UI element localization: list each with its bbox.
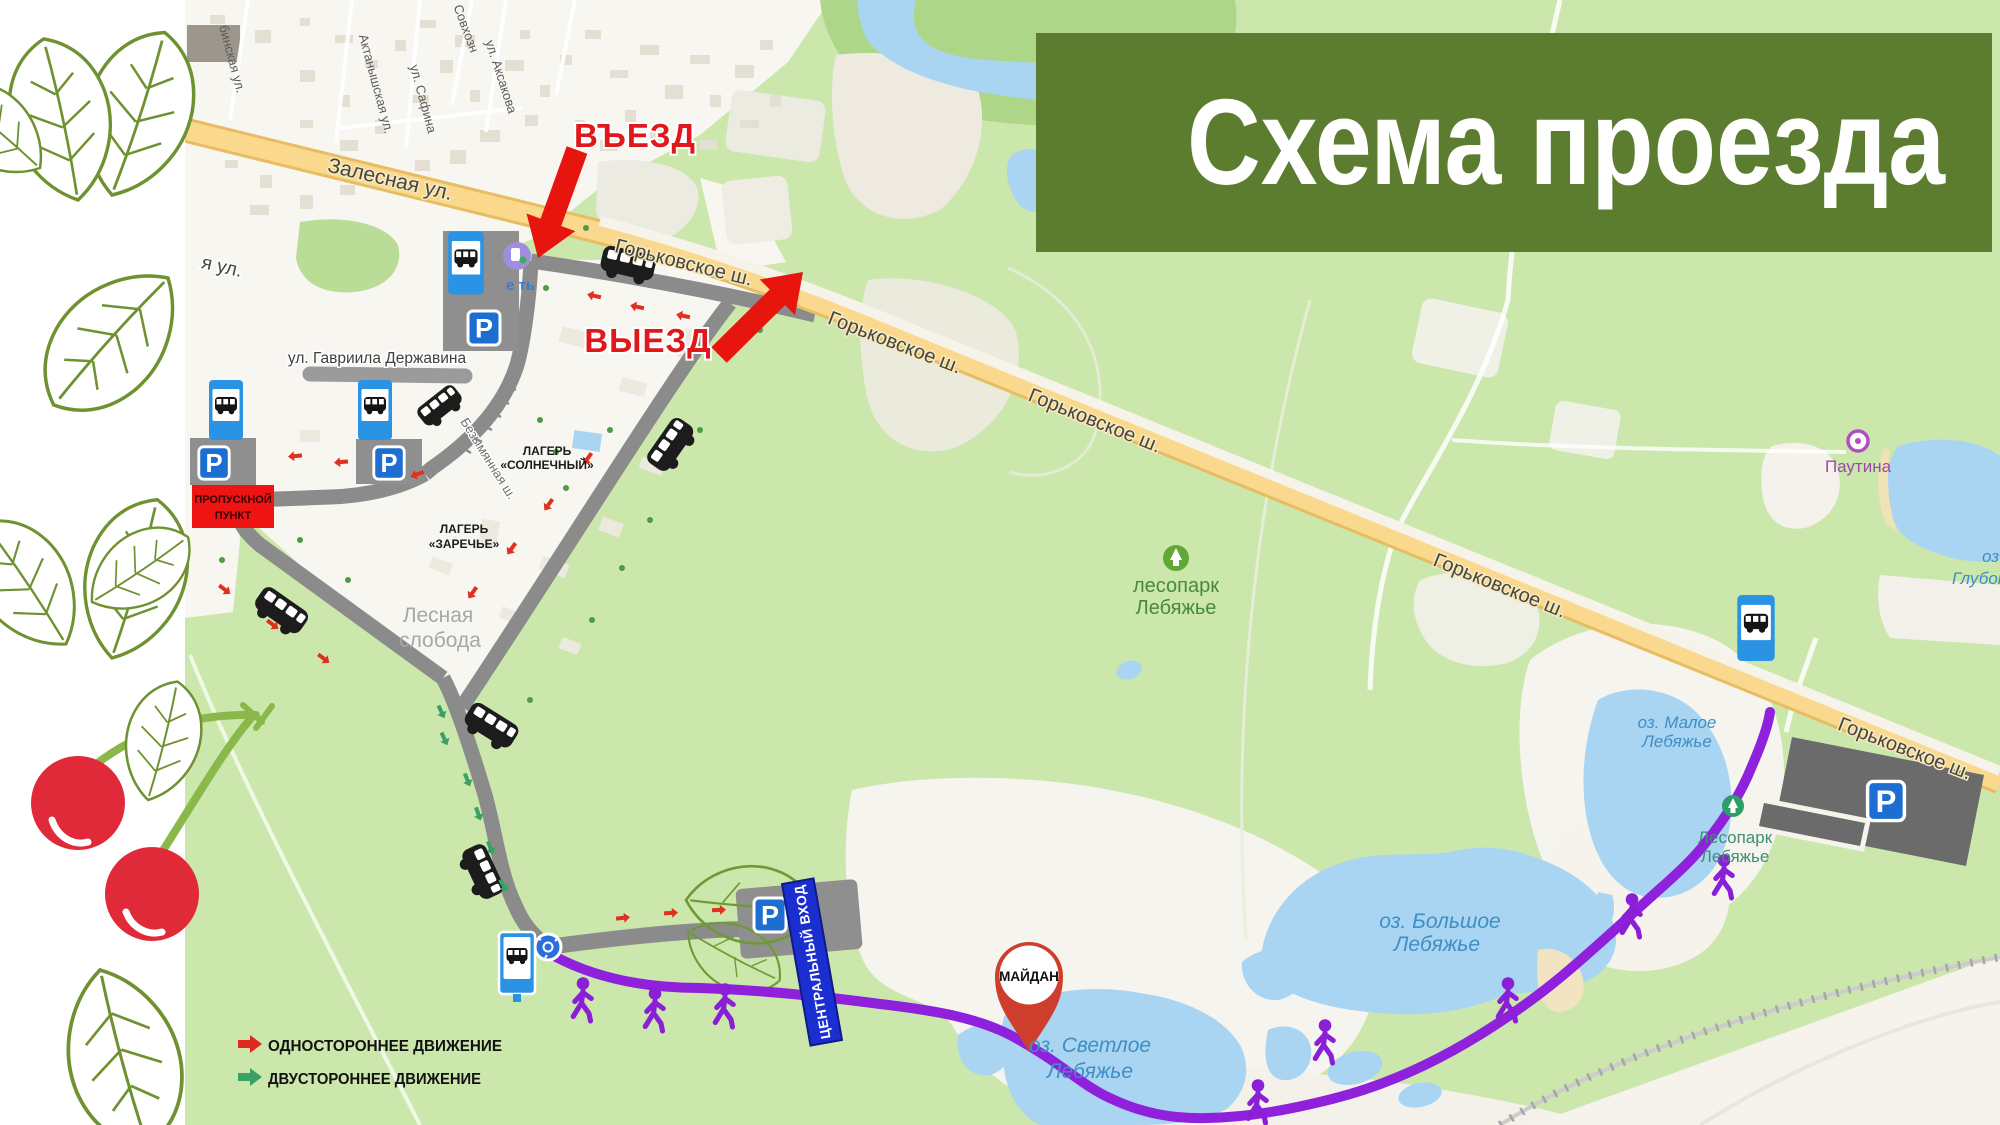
svg-text:Лебяжье: Лебяжье xyxy=(1392,933,1480,956)
svg-text:ВЪЕЗД: ВЪЕЗД xyxy=(574,117,696,154)
svg-text:ЛАГЕРЬ: ЛАГЕРЬ xyxy=(440,522,489,536)
svg-text:ДВУСТОРОННЕЕ ДВИЖЕНИЕ: ДВУСТОРОННЕЕ ДВИЖЕНИЕ xyxy=(268,1071,481,1088)
svg-text:Глубок: Глубок xyxy=(1952,569,2000,588)
svg-text:Паутина: Паутина xyxy=(1825,457,1892,476)
svg-text:Лесная: Лесная xyxy=(403,604,474,627)
svg-text:«СОЛНЕЧНЫЙ»: «СОЛНЕЧНЫЙ» xyxy=(500,457,594,472)
svg-text:Схема проезда: Схема проезда xyxy=(1187,74,1946,210)
svg-text:лесопарк: лесопарк xyxy=(1133,575,1219,597)
svg-text:е ть: е ть xyxy=(506,277,535,294)
svg-text:МАЙДАН: МАЙДАН xyxy=(999,969,1059,984)
svg-text:оз. Малое: оз. Малое xyxy=(1638,713,1717,732)
svg-text:ВЫЕЗД: ВЫЕЗД xyxy=(584,322,711,359)
svg-text:Лебяжье: Лебяжье xyxy=(1045,1060,1133,1083)
svg-text:Лебяжье: Лебяжье xyxy=(1641,732,1712,751)
svg-text:Лесопарк: Лесопарк xyxy=(1698,828,1773,847)
svg-text:слобода: слобода xyxy=(399,629,481,652)
svg-text:оз. Большое: оз. Большое xyxy=(1379,910,1500,933)
svg-text:Лебяжье: Лебяжье xyxy=(1136,597,1217,619)
svg-text:ул. Гавриила Державина: ул. Гавриила Державина xyxy=(288,350,467,367)
svg-text:ПУНКТ: ПУНКТ xyxy=(215,510,252,522)
svg-text:ЛАГЕРЬ: ЛАГЕРЬ xyxy=(523,444,572,458)
svg-text:Лебяжье: Лебяжье xyxy=(1701,847,1770,866)
svg-text:оз.: оз. xyxy=(1982,547,2000,566)
svg-text:ПРОПУСКНОЙ: ПРОПУСКНОЙ xyxy=(194,493,272,506)
svg-text:«ЗАРЕЧЬЕ»: «ЗАРЕЧЬЕ» xyxy=(429,537,500,551)
svg-text:ОДНОСТОРОННЕЕ ДВИЖЕНИЕ: ОДНОСТОРОННЕЕ ДВИЖЕНИЕ xyxy=(268,1038,502,1055)
svg-text:оз. Светлое: оз. Светлое xyxy=(1029,1034,1151,1057)
